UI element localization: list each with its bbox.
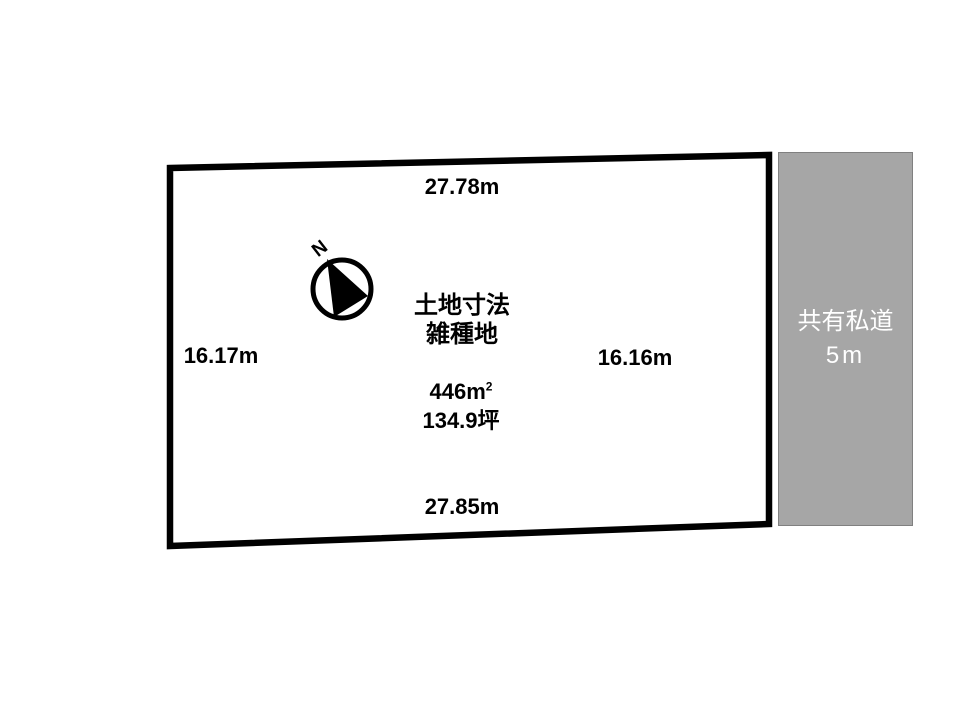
dimension-bottom: 27.85m <box>425 496 500 518</box>
area-square-meters-exponent: 2 <box>486 380 493 394</box>
land-type-label: 雑種地 <box>426 323 498 347</box>
land-parcel-outline <box>170 155 769 546</box>
land-plot-diagram: N 27.78m 16.17m 16.16m 27.85m 土地寸法 雑種地 4… <box>0 0 960 720</box>
dimension-right: 16.16m <box>598 347 673 369</box>
road-name-label: 共有私道 <box>798 305 894 339</box>
dimension-left: 16.17m <box>184 345 259 367</box>
shared-private-road-area: 共有私道 5m <box>778 152 913 526</box>
plot-title: 土地寸法 <box>414 294 510 318</box>
area-tsubo: 134.9坪 <box>422 410 499 432</box>
area-square-meters-value: 446m <box>430 379 486 404</box>
dimension-top: 27.78m <box>425 176 500 198</box>
road-width-label: 5m <box>826 339 865 373</box>
area-square-meters: 446m2 <box>430 381 493 403</box>
